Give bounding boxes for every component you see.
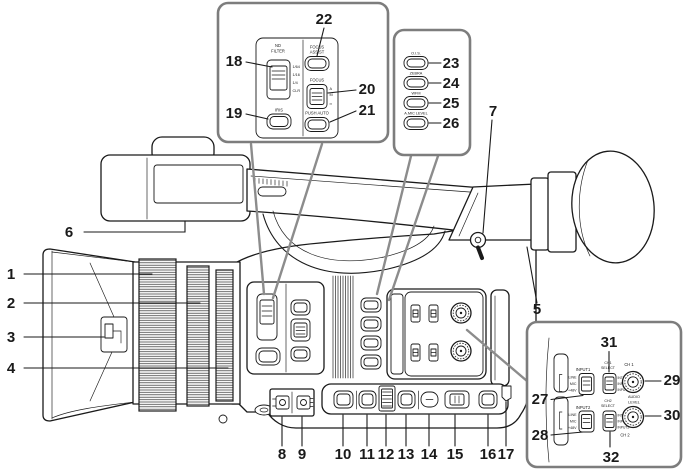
body-screw: [219, 415, 227, 423]
ch2-label: CH 2: [620, 433, 630, 438]
focus-ring: [139, 259, 176, 411]
callout-number-3: 3: [7, 329, 15, 346]
bottom-slide-switch-15: [445, 391, 469, 408]
callout-number-26: 26: [443, 115, 460, 132]
menu-jog-wheel: [379, 386, 395, 411]
zebra-label: ZEBRA: [410, 72, 423, 76]
callout-number-6: 6: [65, 224, 73, 241]
ch2-select-switch: [603, 411, 616, 431]
nd-position-1-64: 1/64: [293, 65, 300, 69]
callout-number-4: 4: [7, 360, 16, 377]
callout-number-17: 17: [498, 446, 515, 463]
lens-hood: [43, 249, 135, 421]
nd-position-1-4: 1/4: [293, 81, 298, 85]
callout-number-5: 5: [533, 301, 541, 318]
focus-switch-body: [291, 319, 310, 341]
focus-switch: [307, 85, 327, 109]
ch1-audio-level-knob: [623, 372, 644, 393]
input2-line-label: LINE: [569, 413, 578, 417]
ch1-select-label-line2: SELECT: [601, 366, 616, 370]
focus-assist-button: [305, 57, 329, 71]
lens-barrel: [133, 259, 240, 411]
input1-label: INPUT1: [576, 367, 591, 372]
bottom-button-strip: [322, 384, 511, 414]
jack-cover-1: [554, 354, 568, 392]
callout-number-28: 28: [532, 427, 549, 444]
push-auto-label: PUSH AUTO: [305, 111, 329, 116]
body-ch1-knob: [451, 303, 471, 323]
callout-number-18: 18: [226, 53, 243, 70]
callout-number-22: 22: [316, 11, 333, 28]
input1-mic-label: MIC: [570, 382, 577, 386]
a-mic-level-label: A.MIC LEVEL: [404, 112, 427, 116]
ch1-select-label-line1: CH1: [604, 361, 611, 365]
nd-position-1-16: 1/16: [293, 73, 300, 77]
nd-filter-label-line2: FILTER: [271, 49, 285, 54]
bottom-button-16: [479, 391, 497, 408]
callout-number-32: 32: [603, 449, 620, 466]
wfm-label: WFM: [411, 92, 420, 96]
iris-ring: [216, 270, 233, 401]
input2-mic-label: MIC: [570, 420, 577, 424]
callout-number-9: 9: [298, 446, 306, 463]
callout-number-20: 20: [359, 81, 376, 98]
nd-filter-label-line1: ND: [275, 43, 281, 48]
iris-label: IRIS: [275, 108, 283, 113]
callout-number-24: 24: [443, 75, 460, 92]
callout-number-1: 1: [7, 266, 15, 283]
inset-box-nd-panel: ND FILTER 1/64 1/16 1/4 CLR IRIS FOCUS A…: [218, 3, 388, 142]
bottom-button-10: [334, 391, 353, 408]
tally-lamp: [258, 187, 286, 196]
ch1-select-switch: [603, 374, 616, 394]
body-ch2-knob: [451, 341, 471, 361]
remote-jack-box: [270, 389, 314, 416]
ois-button: [404, 57, 428, 70]
callout-number-30: 30: [664, 407, 681, 424]
input2-48v-label: +48V: [568, 426, 577, 430]
ch2-audio-level-knob: [623, 407, 644, 428]
focus-position-infinity: ∞: [330, 102, 333, 106]
input2-label: INPUT2: [576, 405, 591, 410]
callout-number-12: 12: [378, 446, 395, 463]
callout-number-16: 16: [480, 446, 497, 463]
callout-number-11: 11: [359, 446, 375, 463]
input1-line-label: LINE: [569, 376, 578, 380]
callout-number-2: 2: [7, 295, 15, 312]
callout-number-8: 8: [278, 446, 286, 463]
ch2-select-label-line2: SELECT: [601, 404, 616, 408]
ois-label: O.I.S.: [411, 52, 421, 56]
callout-number-29: 29: [664, 372, 681, 389]
audio-level-label-line2: LEVEL: [628, 401, 640, 405]
bottom-button-14: [421, 392, 438, 407]
callout-number-10: 10: [335, 446, 352, 463]
diagram-canvas: ND FILTER 1/64 1/16 1/4 CLR IRIS FOCUS A…: [0, 0, 686, 470]
callout-number-15: 15: [447, 446, 464, 463]
jack-cover-2: [554, 397, 568, 445]
callout-number-25: 25: [443, 95, 460, 112]
wfm-button: [404, 97, 428, 110]
callout-number-13: 13: [398, 446, 415, 463]
iris-button: [267, 114, 291, 129]
card-slot-cover: [491, 290, 509, 386]
inset-box-function-buttons: O.I.S. ZEBRA WFM A.MIC LEVEL: [394, 30, 470, 155]
bottom-button-13: [398, 391, 415, 408]
callout-number-31: 31: [601, 334, 618, 351]
grip-tab-17: [502, 386, 511, 401]
bottom-button-11: [359, 391, 376, 408]
push-auto-button: [305, 118, 329, 132]
callout-number-27: 27: [532, 391, 549, 408]
zoom-ring: [187, 266, 209, 406]
callout-number-7: 7: [489, 103, 497, 120]
parts-diagram-page: ND FILTER 1/64 1/16 1/4 CLR IRIS FOCUS A…: [0, 0, 686, 470]
focus-label: FOCUS: [310, 78, 325, 83]
a-mic-level-button: [404, 117, 428, 130]
input1-switch: [579, 374, 594, 395]
iris-button-body: [256, 348, 280, 365]
callout-number-14: 14: [421, 446, 438, 463]
zebra-button: [404, 77, 428, 90]
nd-position-clr: CLR: [293, 89, 301, 93]
nd-filter-switch-body: [257, 294, 277, 340]
body-switch-panel: [247, 282, 324, 374]
ch1-label: CH 1: [624, 362, 634, 367]
callout-number-19: 19: [226, 105, 243, 122]
audio-level-label-line1: AUDIO: [628, 395, 640, 399]
ch2-select-label-line1: CH2: [604, 399, 611, 403]
callout-number-23: 23: [443, 55, 460, 72]
focus-position-m: M: [330, 93, 333, 97]
callout-number-21: 21: [359, 102, 376, 119]
viewfinder-eyecup: [566, 147, 659, 267]
input2-switch: [579, 411, 594, 432]
hood-lever: [101, 317, 127, 352]
evf-tube-ring: [531, 178, 549, 250]
nd-filter-switch: [267, 60, 290, 99]
input1-48v-label: +48V: [568, 389, 577, 393]
